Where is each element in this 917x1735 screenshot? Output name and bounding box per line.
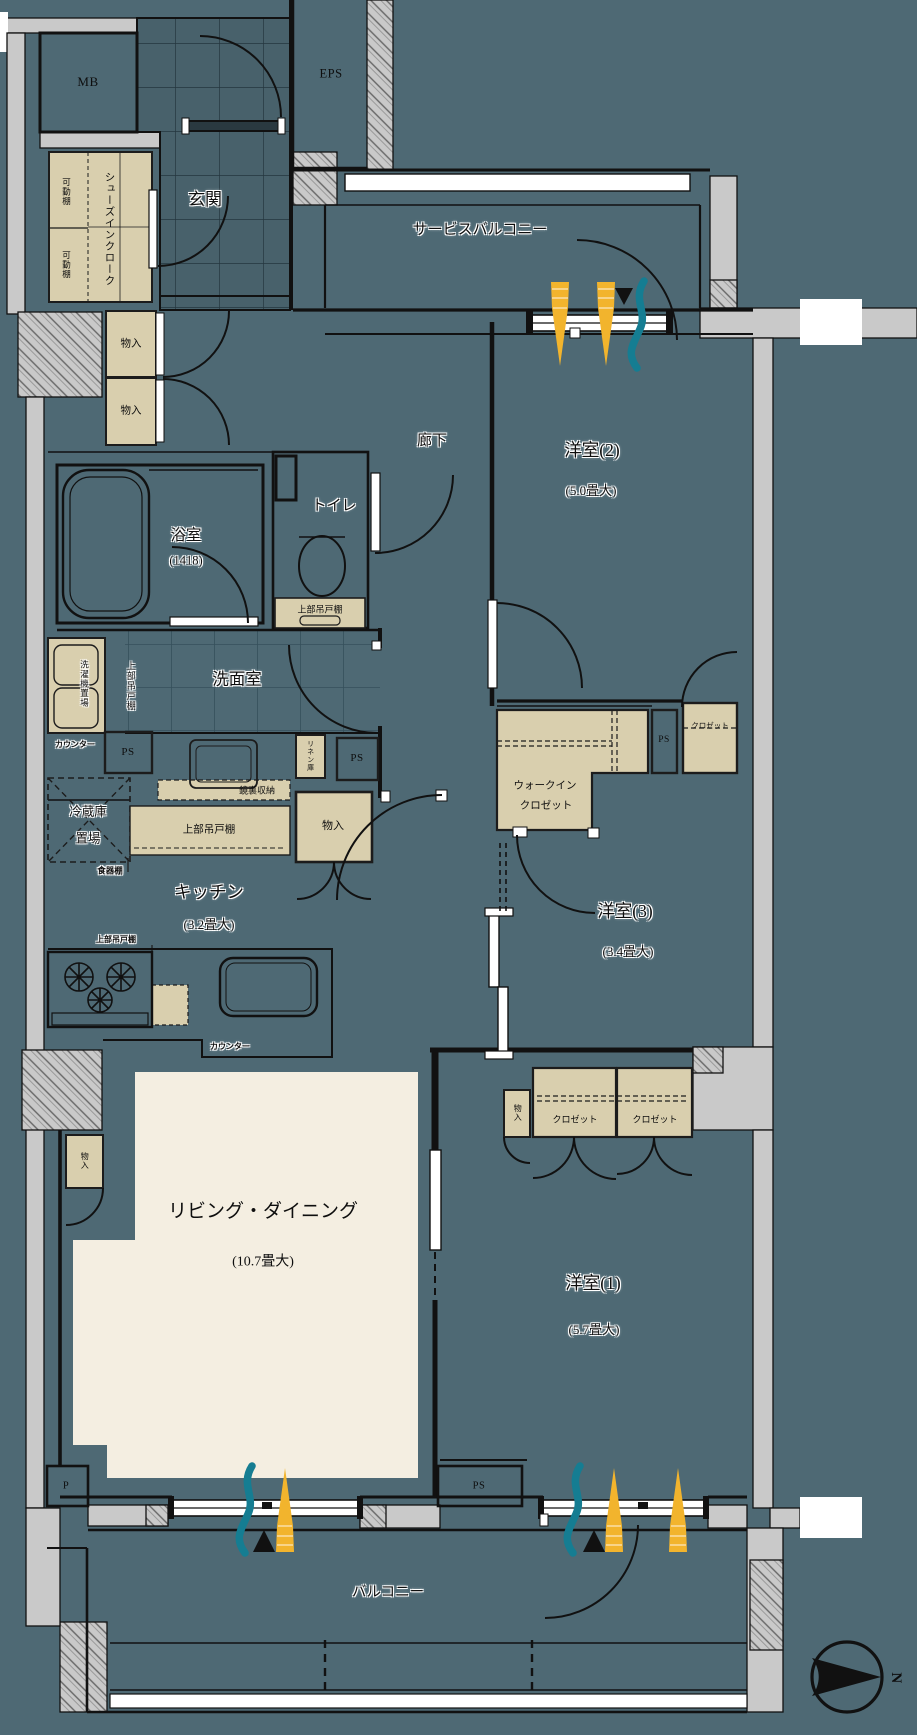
label-counter-kitchen: カウンター: [210, 1043, 250, 1051]
room-label-western2: 洋室(2): [564, 441, 619, 459]
compass-north-label: N: [887, 1672, 903, 1683]
balcony-railing: [110, 1694, 747, 1708]
label-upper-cabinet-kitchen: 上部吊戸棚: [183, 824, 236, 835]
label-movable-shelf-1: 可動棚: [62, 178, 71, 207]
label-fridge-line2: 置場: [75, 832, 100, 845]
room-size-western1: (5.7畳大): [569, 1323, 620, 1337]
label-storage-w1: 物入: [513, 1104, 521, 1122]
label-storage-hall-2: 物入: [121, 405, 142, 416]
room-label-western3: 洋室(3): [597, 902, 652, 920]
label-upper-cabinet-wash: 上部吊戸棚: [125, 661, 134, 711]
label-storage-kitchen: 物入: [322, 821, 344, 833]
label-ps-3: PS: [658, 736, 670, 746]
label-counter-wash: カウンター: [55, 741, 95, 749]
room-label-living-dining: リビング・ダイニング: [168, 1202, 358, 1222]
label-dish-shelf: 食器棚: [97, 867, 123, 876]
room-size-western3: (3.4畳大): [603, 945, 654, 959]
label-closet-w2: クロゼット: [691, 722, 729, 730]
room-label-toilet: トイレ: [311, 499, 356, 515]
room-size-kitchen: (3.2畳大): [184, 918, 235, 932]
label-movable-shelf-2: 可動棚: [62, 251, 71, 280]
label-p: P: [63, 1480, 69, 1491]
wall-opening-bottom: [800, 1497, 862, 1538]
label-linen: リネン庫: [306, 740, 313, 772]
label-closet-2: クロゼット: [632, 1115, 677, 1124]
room-size-bathroom: (1418): [169, 554, 202, 567]
label-closet-1: クロゼット: [552, 1115, 597, 1124]
label-fridge-line1: 冷蔵庫: [69, 805, 107, 818]
floorplan-page: MB EPS 玄関 シューズインクローク 可動棚 可動棚 物入 物入 サービスバ…: [0, 0, 917, 1735]
label-wic-line1: ウォークイン: [514, 780, 577, 791]
floorplan-drawing: [0, 0, 917, 1735]
room-label-bathroom: 浴室: [170, 528, 201, 544]
room-label-genkan: 玄関: [188, 191, 222, 209]
room-size-living-dining: (10.7畳大): [232, 1256, 294, 1271]
label-washer: 洗濯機置場: [80, 660, 89, 708]
label-upper-cabinet-toilet: 上部吊戸棚: [297, 605, 342, 614]
room-label-balcony: バルコニー: [352, 1585, 424, 1600]
room-label-washroom: 洗面室: [212, 670, 262, 687]
label-ps-1: PS: [121, 747, 134, 759]
label-shoes-line2: クローク: [104, 241, 115, 287]
label-shoes-line1: シューズイン: [104, 172, 115, 241]
label-eps: EPS: [319, 67, 342, 80]
label-shoes-in-cloak: シューズインクローク: [103, 172, 114, 287]
label-mirror-storage: 鏡裏収納: [239, 786, 275, 795]
room-label-service-balcony: サービスバルコニー: [413, 223, 548, 239]
label-storage-hall-1: 物入: [121, 338, 142, 349]
label-ps-2: PS: [350, 753, 363, 765]
label-storage-ld: 物入: [80, 1152, 88, 1170]
label-ps-4: PS: [473, 1480, 486, 1491]
label-wic-line2: クロゼット: [520, 800, 573, 811]
room-label-kitchen: キッチン: [174, 883, 244, 901]
room-label-corridor: 廊下: [417, 434, 447, 450]
label-mb: MB: [77, 75, 98, 89]
wall-opening-top: [800, 299, 862, 345]
room-label-western1: 洋室(1): [565, 1274, 620, 1292]
label-upper-cabinet-stove: 上部吊戸棚: [96, 936, 136, 944]
room-size-western2: (5.0畳大): [566, 484, 617, 498]
